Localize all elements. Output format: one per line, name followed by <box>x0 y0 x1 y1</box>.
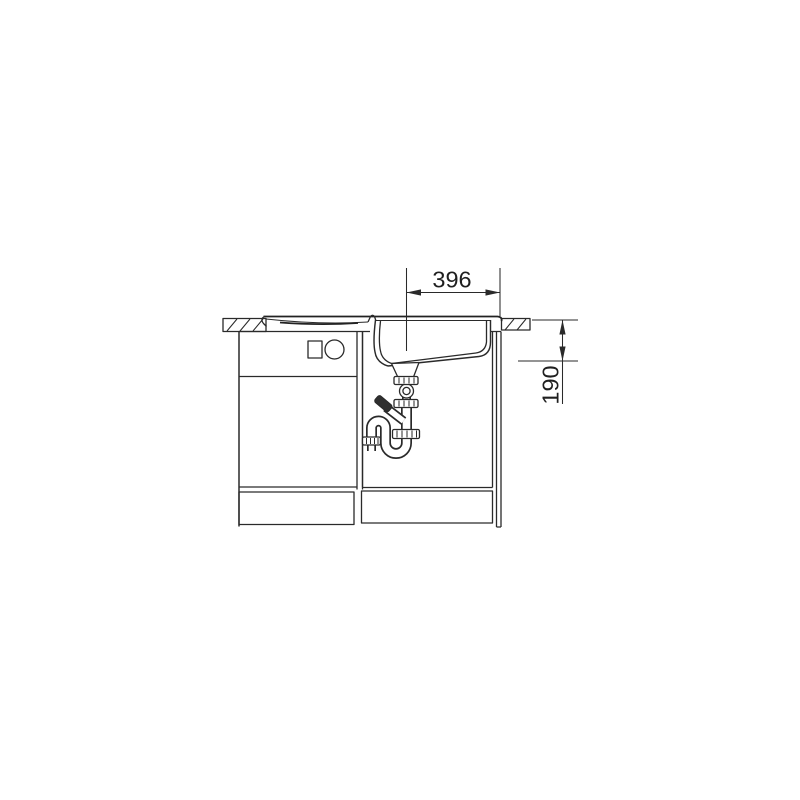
hatch-lines-right <box>505 319 526 330</box>
dimension-depth-190: 190 <box>518 320 578 405</box>
union-nut-1 <box>394 377 418 385</box>
plinth-drawer-left <box>239 492 354 525</box>
union-nut-4 <box>363 437 381 445</box>
union-nut-3 <box>393 430 420 439</box>
siphon-trap <box>363 363 420 454</box>
bowl-right-wall-inner <box>476 321 487 353</box>
hatch-lines-left <box>227 319 263 331</box>
dimension-width-label: 396 <box>432 267 471 293</box>
countertop-left-section <box>223 319 266 332</box>
technical-drawing-canvas: 396 190 <box>0 0 800 800</box>
front-symbol-square <box>308 341 322 358</box>
arrowhead-left <box>407 289 422 295</box>
inlet-cap <box>374 395 393 413</box>
front-symbol-circle <box>325 340 344 359</box>
plinth-drawer-right <box>362 491 493 523</box>
drain-funnel <box>392 363 420 378</box>
cabinet-right-wall <box>497 332 502 528</box>
cabinet-divider <box>357 332 363 490</box>
ring-elbow-outer <box>400 384 414 398</box>
bowl-left-wall-outer <box>374 320 388 366</box>
arrowhead-right <box>486 289 501 295</box>
dimension-depth-label: 190 <box>538 365 564 404</box>
sink <box>262 315 502 366</box>
arrowhead-down <box>559 347 565 362</box>
arrowhead-up <box>559 320 565 335</box>
sink-section-drawing: 396 190 <box>0 0 800 800</box>
union-nut-2 <box>394 400 418 408</box>
countertop-right-section <box>502 319 531 331</box>
bowl-left-wall-inner <box>379 321 391 364</box>
